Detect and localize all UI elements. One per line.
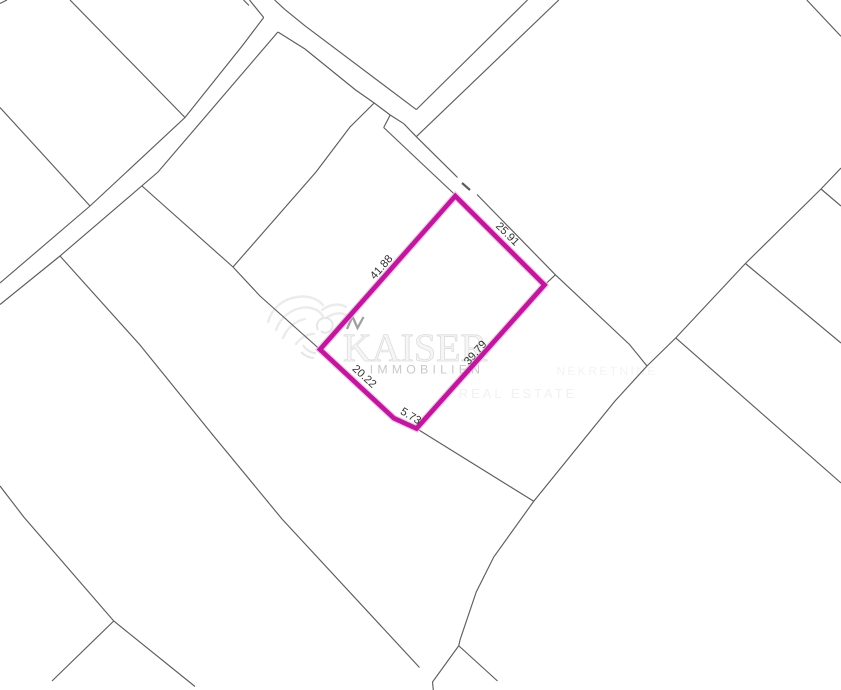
svg-text:REAL ESTATE: REAL ESTATE bbox=[459, 386, 578, 401]
